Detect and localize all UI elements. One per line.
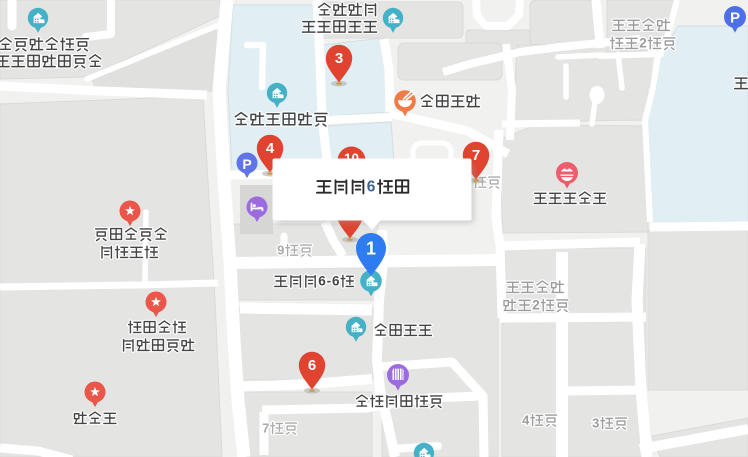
svg-text:7: 7 xyxy=(472,147,480,164)
svg-text:P: P xyxy=(730,10,740,27)
svg-text:2: 2 xyxy=(639,36,647,51)
svg-text:3: 3 xyxy=(335,50,343,67)
svg-text:6: 6 xyxy=(367,179,376,196)
svg-text:6: 6 xyxy=(318,274,326,289)
svg-text:6: 6 xyxy=(308,357,316,374)
svg-text:3: 3 xyxy=(592,416,599,431)
svg-text:9: 9 xyxy=(277,243,284,258)
svg-text:1: 1 xyxy=(366,239,376,259)
svg-text:6: 6 xyxy=(332,274,340,289)
svg-text:4: 4 xyxy=(522,413,530,428)
svg-text:4: 4 xyxy=(266,140,275,157)
svg-text:7: 7 xyxy=(262,421,269,436)
svg-text:-: - xyxy=(327,274,332,289)
svg-text:P: P xyxy=(242,156,251,172)
svg-text:2: 2 xyxy=(532,298,540,313)
